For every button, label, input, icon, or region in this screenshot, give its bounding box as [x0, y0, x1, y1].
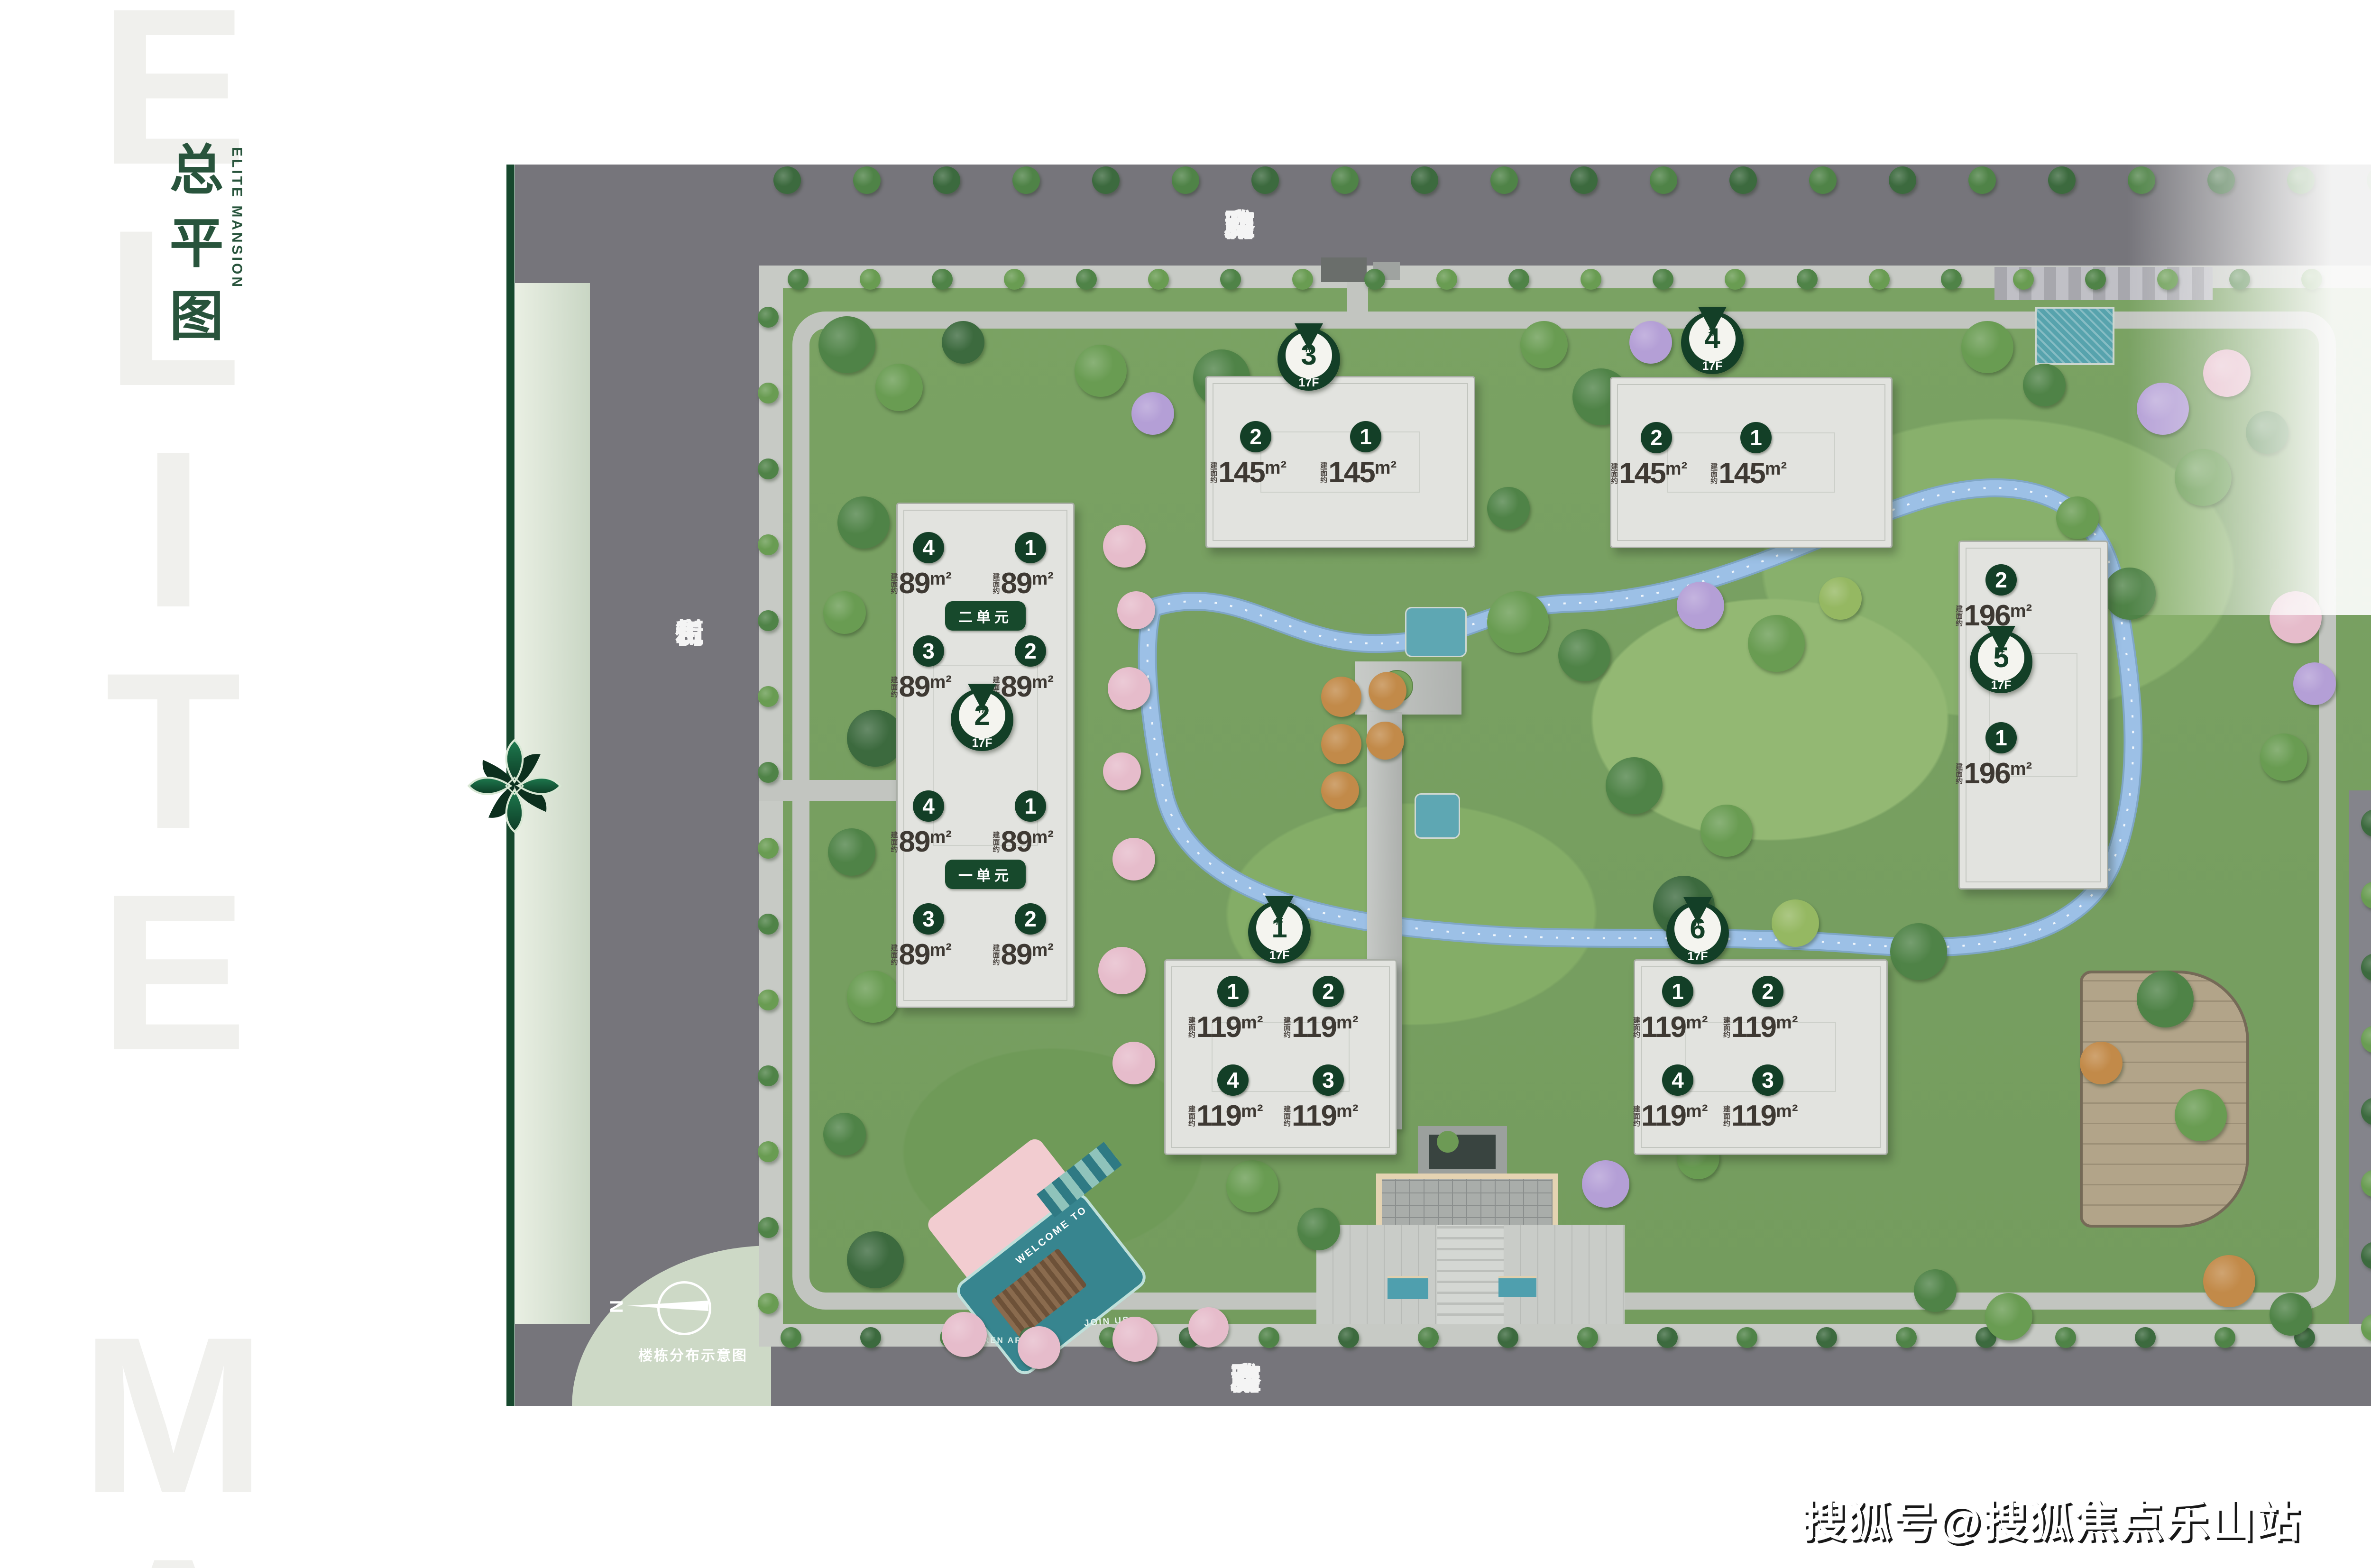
unit-area: 建面约119m²: [1722, 1013, 1814, 1042]
tree-icon: [1004, 269, 1025, 290]
unit-marker: 3 建面约119m²: [1723, 1064, 1813, 1131]
tree-icon: [1172, 166, 1199, 194]
unit-marker: 1 建面约89m²: [995, 790, 1066, 857]
pin-tail: [968, 684, 996, 710]
tree-icon: [837, 496, 890, 549]
building-3: 3# 17F 2 建面约145m² 1 建面约145m²: [1205, 376, 1475, 548]
legend-caption: 楼栋分布示意图: [638, 1344, 748, 1365]
unit-number: 1: [1740, 422, 1772, 453]
tree-icon: [1582, 1160, 1629, 1208]
brand-flower-icon: [465, 736, 564, 838]
unit-area: 建面约145m²: [1319, 458, 1412, 487]
tree-icon: [1321, 724, 1361, 764]
unit-marker: 2 建面约119m²: [1723, 976, 1813, 1042]
unit-number: 4: [913, 790, 944, 822]
tree-icon: [758, 383, 779, 403]
tree-icon: [933, 166, 960, 194]
tree-icon: [758, 914, 779, 935]
tree-icon: [818, 316, 875, 373]
tree-icon: [2056, 496, 2099, 539]
tree-icon: [1103, 525, 1146, 568]
tree-icon: [1985, 1293, 2032, 1340]
tree-icon: [1112, 1317, 1158, 1362]
tree-icon: [1869, 269, 1890, 290]
unit-marker: 3 建面约89m²: [893, 903, 964, 970]
tree-icon: [758, 307, 779, 328]
tree-icon: [1364, 269, 1385, 290]
tree-icon: [2023, 364, 2066, 406]
unit-number: 3: [913, 903, 944, 935]
tree-icon: [1570, 166, 1598, 194]
unit-marker: 2 建面约145m²: [1611, 422, 1701, 488]
unit-number: 1: [1350, 421, 1381, 452]
tree-icon: [1896, 1327, 1917, 1348]
unit-number: 3: [913, 635, 944, 667]
floors-label: 17F: [1277, 376, 1340, 390]
unit-marker: 1 建面约145m²: [1711, 422, 1801, 488]
tree-icon: [2361, 1314, 2371, 1341]
unit-area: 建面约89m²: [890, 827, 967, 857]
master-plan-page: ELITE MANSION 总平图 ELITE MANSION: [0, 0, 2371, 1568]
tree-icon: [2361, 1026, 2371, 1053]
unit-area: 建面约119m²: [1187, 1101, 1279, 1131]
unit-area: 建面约89m²: [992, 940, 1069, 970]
tree-icon: [758, 610, 779, 631]
tree-icon: [1226, 1160, 1278, 1212]
tree-icon: [2361, 809, 2371, 837]
unit-area: 建面约89m²: [890, 569, 967, 598]
compass-needle-icon: [627, 1301, 708, 1311]
unit-number: 4: [1217, 1064, 1249, 1096]
unit-number: 4: [1662, 1064, 1693, 1096]
unit-area: 建面约119m²: [1187, 1013, 1279, 1042]
tree-icon: [1411, 166, 1438, 194]
building-2-pin: 2# 17F: [951, 688, 1013, 751]
north-letter: N: [607, 1300, 627, 1313]
tree-icon: [847, 710, 904, 767]
floors-label: 17F: [1248, 949, 1311, 963]
tree-icon: [1819, 577, 1862, 620]
tree-icon: [823, 591, 866, 634]
tree-icon: [1112, 838, 1155, 880]
unit-area: 建面约119m²: [1722, 1101, 1814, 1131]
page-title: 总平图: [164, 141, 218, 360]
tree-icon: [847, 1231, 904, 1288]
tree-icon: [758, 686, 779, 707]
tree-icon: [1292, 269, 1313, 290]
unit-marker: 2 建面约89m²: [995, 903, 1066, 970]
unit-number: 3: [1313, 1064, 1344, 1096]
tree-icon: [788, 269, 809, 290]
tree-icon: [1508, 269, 1529, 290]
tree-icon: [2137, 971, 2194, 1027]
tree-icon: [1737, 1327, 1757, 1348]
tree-icon: [1700, 805, 1753, 857]
tree-icon: [2080, 1042, 2123, 1084]
tree-icon: [1103, 752, 1141, 790]
credit-watermark: 搜狐号@搜狐焦点乐山站: [1802, 1486, 2302, 1550]
unit-marker: 1 建面约119m²: [1633, 976, 1723, 1042]
tree-icon: [1650, 166, 1677, 194]
unit-number: 3: [1752, 1064, 1783, 1096]
tree-icon: [1331, 166, 1359, 194]
tree-icon: [1012, 166, 1040, 194]
tree-icon: [1677, 582, 1724, 629]
unit-area: 建面约119m²: [1632, 1101, 1724, 1131]
tree-icon: [1366, 722, 1404, 760]
tree-icon: [2175, 1089, 2227, 1141]
unit-number: 2: [1015, 903, 1046, 935]
tree-icon: [1629, 321, 1672, 364]
tree-icon: [1251, 166, 1279, 194]
building-5-pin: 5# 17F: [1970, 631, 2032, 693]
tree-icon: [2361, 954, 2371, 981]
tree-icon: [2085, 269, 2106, 290]
tree-icon: [860, 269, 881, 290]
unit-area: 建面约145m²: [1610, 459, 1703, 488]
unit-marker: 4 建面约89m²: [893, 790, 964, 857]
unit-marker: 4 建面约89m²: [893, 532, 964, 598]
tree-icon: [2361, 881, 2371, 909]
site-plan-map: WELCOME TO JOIN US CHILDREN AREA 3# 17F …: [515, 165, 2371, 1406]
fade-overlay: [2127, 165, 2371, 615]
tree-icon: [1075, 345, 1127, 397]
floors-label: 17F: [1970, 679, 2032, 692]
tree-icon: [1890, 923, 1947, 980]
tree-icon: [1520, 321, 1568, 368]
tree-icon: [1653, 269, 1673, 290]
unit-number: 2: [1240, 421, 1271, 452]
tree-icon: [1108, 667, 1150, 710]
tree-icon: [1889, 166, 1916, 194]
tree-icon: [1338, 1327, 1359, 1348]
tree-icon: [2013, 269, 2034, 290]
tree-icon: [2293, 662, 2336, 705]
tree-icon: [2361, 1098, 2371, 1125]
tree-icon: [860, 1327, 881, 1348]
tree-icon: [1577, 1327, 1598, 1348]
unit-number: 1: [1217, 976, 1249, 1007]
pin-tail: [1987, 626, 2015, 652]
tree-icon: [1321, 677, 1361, 717]
unit-marker: 2 建面约145m²: [1211, 421, 1301, 487]
tree-icon: [1321, 771, 1359, 809]
tree-icon: [758, 534, 779, 555]
pin-tail: [1295, 323, 1323, 350]
unit-area: 建面约196m²: [1955, 759, 2048, 789]
unit-number: 4: [913, 532, 944, 563]
tree-icon: [758, 990, 779, 1010]
tree-icon: [1148, 269, 1169, 290]
tree-icon: [847, 971, 899, 1023]
unit-marker: 1 建面约145m²: [1321, 421, 1411, 487]
building-5: 5# 17F 2 建面约196m² 1 建面约196m²: [1958, 541, 2108, 889]
tree-icon: [1131, 392, 1174, 435]
unit-marker: 2 建面约196m²: [1956, 564, 2046, 631]
tree-icon: [1436, 269, 1457, 290]
tree-icon: [758, 1217, 779, 1238]
tree-icon: [828, 828, 875, 876]
unit-number: 2: [1641, 422, 1672, 453]
section-label: 一单元: [945, 860, 1026, 889]
tree-icon: [1748, 615, 1805, 672]
unit-area: 建面约89m²: [890, 940, 967, 970]
tree-icon: [1418, 1327, 1439, 1348]
building-3-pin: 3# 17F: [1277, 328, 1340, 391]
tree-icon: [1941, 269, 1962, 290]
tree-icon: [2055, 1327, 2076, 1348]
tree-icon: [942, 321, 984, 364]
tree-icon: [1487, 591, 1549, 653]
unit-area: 建面约145m²: [1209, 458, 1302, 487]
building-4-pin: 4# 17F: [1681, 312, 1744, 374]
unit-area: 建面约119m²: [1283, 1101, 1374, 1131]
tree-icon: [1729, 166, 1757, 194]
floors-label: 17F: [951, 736, 1013, 750]
pin-tail: [1698, 307, 1727, 333]
tree-icon: [1968, 166, 1996, 194]
tree-icon: [1018, 1326, 1060, 1369]
unit-marker: 2 建面约119m²: [1283, 976, 1373, 1042]
tree-icon: [1606, 757, 1663, 814]
building-1-pin: 1# 17F: [1248, 901, 1311, 963]
tree-icon: [1092, 166, 1120, 194]
unit-marker: 4 建面约119m²: [1633, 1064, 1723, 1131]
building-4: 4# 17F 2 建面约145m² 1 建面约145m²: [1610, 377, 1893, 548]
unit-area: 建面约119m²: [1283, 1013, 1374, 1042]
unit-number: 2: [1985, 564, 2017, 596]
tree-icon: [1076, 269, 1097, 290]
tree-icon: [1961, 321, 2013, 373]
unit-area: 建面约89m²: [992, 569, 1069, 598]
unit-number: 2: [1015, 635, 1046, 667]
unit-marker: 1 建面约89m²: [995, 532, 1066, 598]
unit-number: 2: [1752, 976, 1783, 1007]
tree-icon: [1725, 269, 1746, 290]
tree-icon: [1914, 1269, 1957, 1312]
building-6-pin: 6# 17F: [1666, 902, 1729, 964]
unit-marker: 4 建面约119m²: [1188, 1064, 1278, 1131]
tree-icon: [1498, 1327, 1518, 1348]
north-arrow: N 楼栋分布示意图: [634, 1281, 795, 1366]
page-subtitle-en: ELITE MANSION: [229, 147, 245, 289]
tree-icon: [932, 269, 953, 290]
tree-icon: [853, 166, 881, 194]
tree-icon: [1188, 1307, 1229, 1348]
tree-icon: [758, 458, 779, 479]
unit-marker: 1 建面约119m²: [1188, 976, 1278, 1042]
unit-area: 建面约119m²: [1632, 1013, 1724, 1042]
floors-label: 17F: [1681, 359, 1744, 373]
tree-icon: [942, 1312, 987, 1357]
tree-icon: [1657, 1327, 1678, 1348]
pin-tail: [1265, 896, 1294, 923]
tree-icon: [1259, 1327, 1279, 1348]
tree-icon: [1369, 672, 1406, 710]
tree-icon: [1581, 269, 1601, 290]
tree-icon: [1797, 269, 1818, 290]
tree-icon: [1297, 1208, 1340, 1250]
tree-icon: [1220, 269, 1241, 290]
tree-icon: [1098, 947, 1146, 994]
tree-icon: [1112, 1042, 1155, 1084]
tree-icon: [758, 1141, 779, 1162]
tree-icon: [1809, 166, 1837, 194]
unit-number: 1: [1015, 790, 1046, 822]
unit-area: 建面约89m²: [992, 827, 1069, 857]
unit-marker: 1 建面约196m²: [1956, 722, 2046, 789]
tree-icon: [2215, 1327, 2235, 1348]
tree-icon: [2260, 734, 2307, 781]
tree-icon: [2361, 1170, 2371, 1197]
tree-icon: [758, 762, 779, 783]
unit-number: 2: [1313, 976, 1344, 1007]
unit-number: 1: [1015, 532, 1046, 563]
tree-icon: [758, 838, 779, 859]
tree-icon: [2270, 1293, 2312, 1336]
unit-area: 建面约145m²: [1709, 459, 1802, 488]
section-label: 二单元: [945, 601, 1026, 631]
tree-icon: [758, 1065, 779, 1086]
tree-icon: [2203, 1255, 2255, 1307]
tree-icon: [1772, 899, 1819, 947]
tree-icon: [1558, 629, 1610, 681]
tree-icon: [823, 1113, 866, 1155]
building-1: 1# 17F 1 建面约119m² 2 建面约119m² 4 建面约119m² …: [1164, 959, 1397, 1155]
tree-icon: [1117, 591, 1155, 629]
tree-icon: [2361, 1242, 2371, 1269]
floors-label: 17F: [1666, 950, 1729, 963]
unit-number: 1: [1985, 722, 2017, 753]
unit-marker: 3 建面约119m²: [1283, 1064, 1373, 1131]
building-6: 6# 17F 1 建面约119m² 2 建面约119m² 4 建面约119m² …: [1634, 959, 1888, 1155]
tree-icon: [1490, 166, 1518, 194]
tree-icon: [2135, 1327, 2156, 1348]
building-2: 2# 17F 4 建面约89m² 1 建面约89m² 二单元 3 建面约89m²…: [896, 503, 1075, 1008]
unit-number: 1: [1662, 976, 1693, 1007]
tree-icon: [875, 364, 923, 411]
tree-icon: [2048, 166, 2076, 194]
tree-icon: [1487, 487, 1530, 530]
pin-tail: [1683, 897, 1712, 924]
tree-icon: [1816, 1327, 1837, 1348]
tree-icon: [773, 166, 801, 194]
